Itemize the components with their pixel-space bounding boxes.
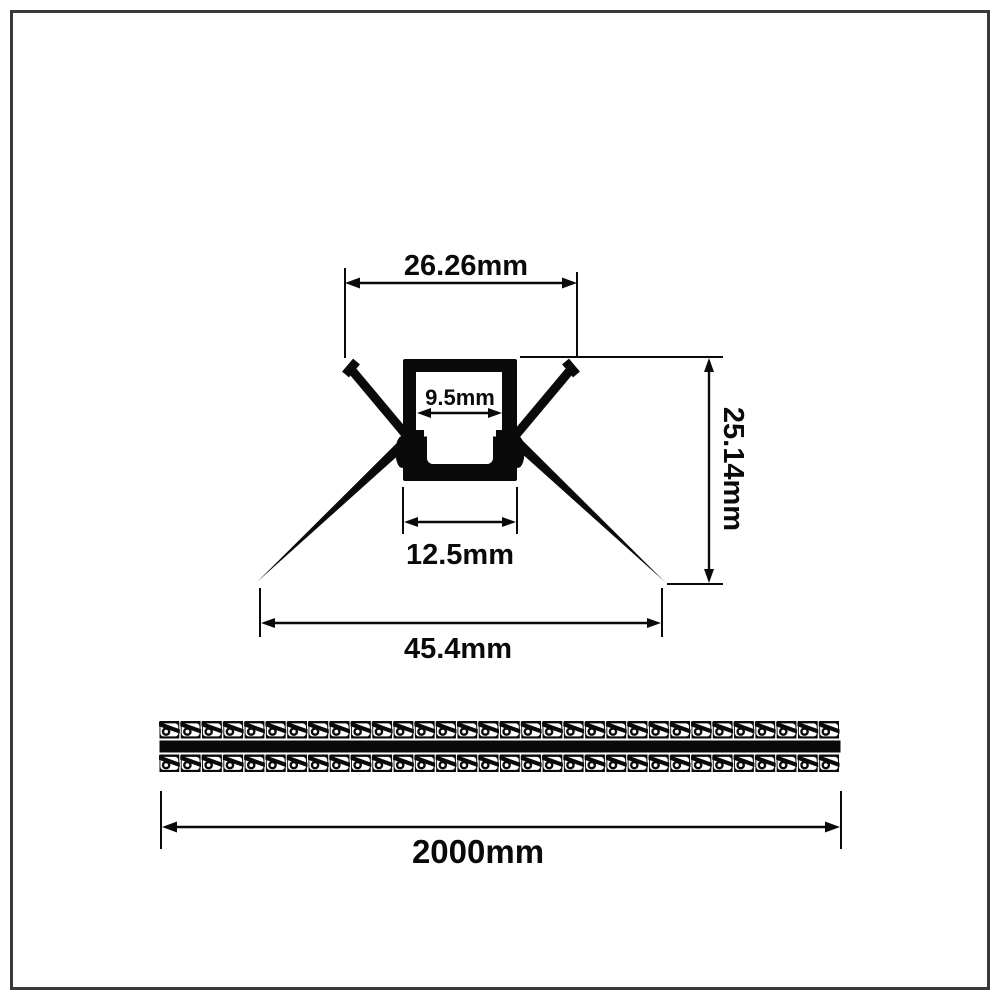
dim-label-overall-width: 45.4mm [404, 633, 512, 665]
tread-pattern-tile [223, 755, 244, 773]
tread-pattern-tile [819, 755, 840, 773]
dim-label-base-width: 12.5mm [406, 539, 514, 571]
tread-pattern-tile [244, 755, 265, 773]
profile-wing-lower-right [510, 428, 665, 582]
profile-led-channel [427, 436, 493, 464]
tread-pattern-tile [712, 755, 733, 773]
tread-pattern-tile [372, 721, 393, 739]
tread-pattern-tile [393, 721, 414, 739]
tread-pattern-row-top [159, 721, 840, 739]
tread-pattern-tile [542, 755, 563, 773]
tread-pattern-tile [627, 755, 648, 773]
tread-pattern-tile [797, 721, 818, 739]
arrowhead-right-icon [562, 278, 577, 289]
dim-label-length: 2000mm [412, 833, 544, 870]
tread-pattern-tile [351, 755, 372, 773]
tread-pattern-tile [265, 721, 286, 739]
length-view-center-band [160, 741, 841, 753]
tread-pattern-tile [372, 755, 393, 773]
tread-pattern-tile [734, 755, 755, 773]
tread-pattern-tile [329, 721, 350, 739]
arrowhead-right-icon [502, 517, 516, 527]
dimension-length: 2000mm [161, 791, 841, 870]
dimension-overall-width: 45.4mm [260, 588, 662, 665]
tread-pattern-tile [670, 755, 691, 773]
profile-wing-upper-right [510, 368, 572, 442]
tread-pattern-tile [159, 755, 180, 773]
tread-pattern-tile [180, 721, 201, 739]
tread-pattern-tile [776, 755, 797, 773]
tread-pattern-tile [265, 755, 286, 773]
tread-pattern-tile [287, 755, 308, 773]
arrowhead-down-icon [704, 569, 714, 583]
profile-length-view [159, 721, 841, 772]
profile-channel-mouth [424, 430, 496, 437]
tread-pattern-tile [691, 755, 712, 773]
tread-pattern-tile [202, 721, 223, 739]
tread-pattern-tile [797, 755, 818, 773]
dim-label-opening-width: 9.5mm [425, 385, 495, 410]
tread-pattern-tile [627, 721, 648, 739]
tread-pattern-tile [755, 721, 776, 739]
tread-pattern-tile [521, 755, 542, 773]
tread-pattern-tile [755, 755, 776, 773]
tread-pattern-tile [223, 721, 244, 739]
dim-label-height: 25.14mm [717, 407, 749, 531]
tread-pattern-tile [287, 721, 308, 739]
dimension-top-width: 26.26mm [345, 250, 577, 358]
tread-pattern-tile [202, 755, 223, 773]
tread-pattern-tile [329, 755, 350, 773]
tread-pattern-tile [606, 755, 627, 773]
tread-pattern-tile [159, 721, 180, 739]
tread-pattern-row-bottom [159, 755, 840, 773]
profile-wing-upper-left [350, 368, 412, 442]
tread-pattern-tile [734, 721, 755, 739]
tread-pattern-tile [180, 755, 201, 773]
tread-pattern-tile [308, 755, 329, 773]
tread-pattern-tile [244, 721, 265, 739]
dimension-opening-width: 9.5mm [417, 385, 502, 418]
tread-pattern-tile [648, 755, 669, 773]
tread-pattern-tile [436, 755, 457, 773]
dim-label-top-width: 26.26mm [404, 250, 528, 282]
tread-pattern-tile [414, 755, 435, 773]
tread-pattern-tile [500, 755, 521, 773]
tread-pattern-tile [585, 755, 606, 773]
tread-pattern-tile [819, 721, 840, 739]
tread-pattern-tile [393, 755, 414, 773]
arrowhead-left-icon [345, 278, 360, 289]
tread-pattern-tile [414, 721, 435, 739]
arrowhead-left-icon [261, 618, 275, 628]
tread-pattern-tile [478, 721, 499, 739]
tread-pattern-tile [500, 721, 521, 739]
arrowhead-up-icon [704, 358, 714, 372]
tread-pattern-tile [457, 755, 478, 773]
tread-pattern-tile [457, 721, 478, 739]
arrowhead-right-icon [825, 822, 840, 833]
tread-pattern-tile [521, 721, 542, 739]
dimension-base-width: 12.5mm [403, 487, 517, 571]
arrowhead-left-icon [404, 517, 418, 527]
tread-pattern-tile [712, 721, 733, 739]
tread-pattern-tile [648, 721, 669, 739]
tread-pattern-tile [606, 721, 627, 739]
tread-pattern-tile [670, 721, 691, 739]
page-border: 26.26mm 9.5mm 25.14mm 12.5mm [10, 10, 990, 990]
tread-pattern-tile [308, 721, 329, 739]
tread-pattern-tile [351, 721, 372, 739]
tread-pattern-tile [691, 721, 712, 739]
arrowhead-right-icon [647, 618, 661, 628]
tread-pattern-tile [585, 721, 606, 739]
technical-drawing: 26.26mm 9.5mm 25.14mm 12.5mm [0, 0, 1000, 1000]
arrowhead-left-icon [162, 822, 177, 833]
profile-wing-lower-left [257, 428, 412, 582]
tread-pattern-tile [542, 721, 563, 739]
tread-pattern-tile [478, 755, 499, 773]
tread-pattern-tile [436, 721, 457, 739]
tread-pattern-tile [563, 755, 584, 773]
tread-pattern-tile [776, 721, 797, 739]
tread-pattern-tile [563, 721, 584, 739]
